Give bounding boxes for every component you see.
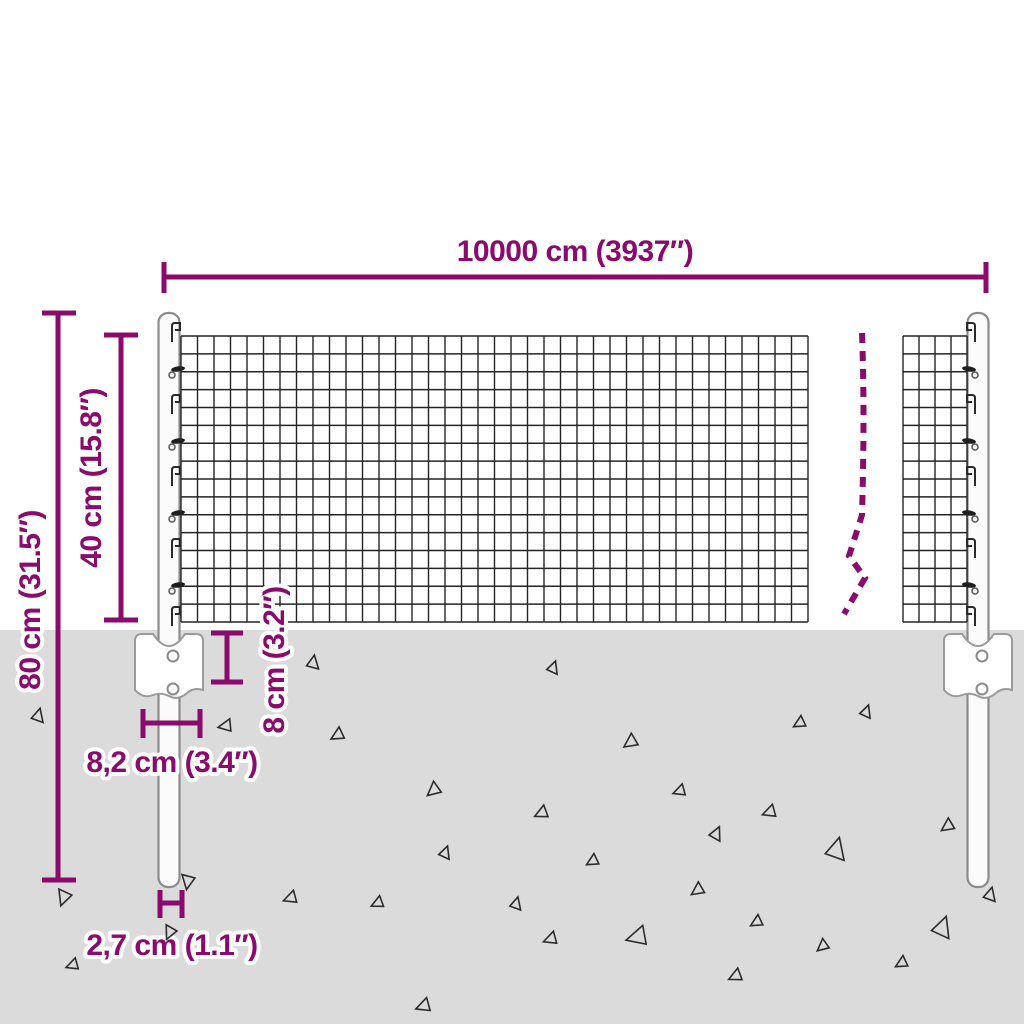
label-mesh-height: 40 cm (15.8″) <box>75 388 108 568</box>
plate-hole <box>168 684 179 695</box>
label-total-width: 10000 cm (3937″) <box>457 235 694 268</box>
diagram-canvas: 10000 cm (3937″) 80 cm (31.5″) 40 cm (15… <box>0 0 1024 1024</box>
plate-hole <box>977 684 988 695</box>
fence-dimension-diagram: 10000 cm (3937″) 80 cm (31.5″) 40 cm (15… <box>0 0 1024 1024</box>
plate-hole <box>977 651 988 662</box>
label-anchor-width: 8,2 cm (3.4″) <box>86 746 257 779</box>
label-total-height: 80 cm (31.5″) <box>14 510 47 690</box>
plate-hole <box>168 651 179 662</box>
fence-post-left <box>159 313 180 887</box>
fence-post-right <box>968 313 989 887</box>
label-anchor-depth: 8 cm (3.2″) <box>258 586 291 733</box>
